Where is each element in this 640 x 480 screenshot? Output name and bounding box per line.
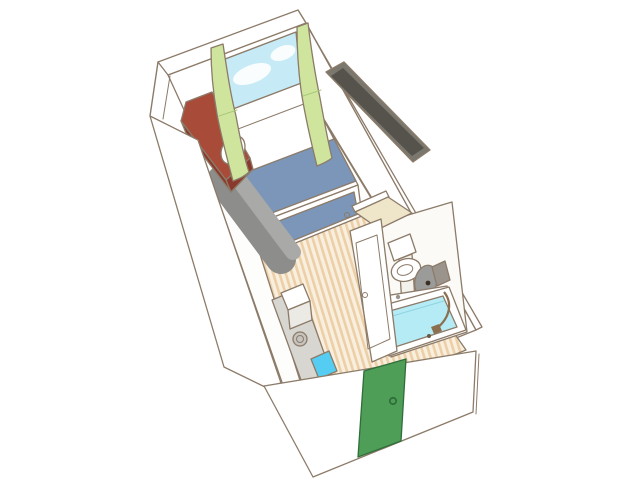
entrance-door [358,359,406,457]
room-isometric-illustration [0,0,640,480]
kettle [293,332,307,346]
illustration-canvas [0,0,640,480]
bathtub-drain [427,334,431,338]
faucet-knob [396,295,400,299]
toilet-lid-dot [426,281,431,286]
